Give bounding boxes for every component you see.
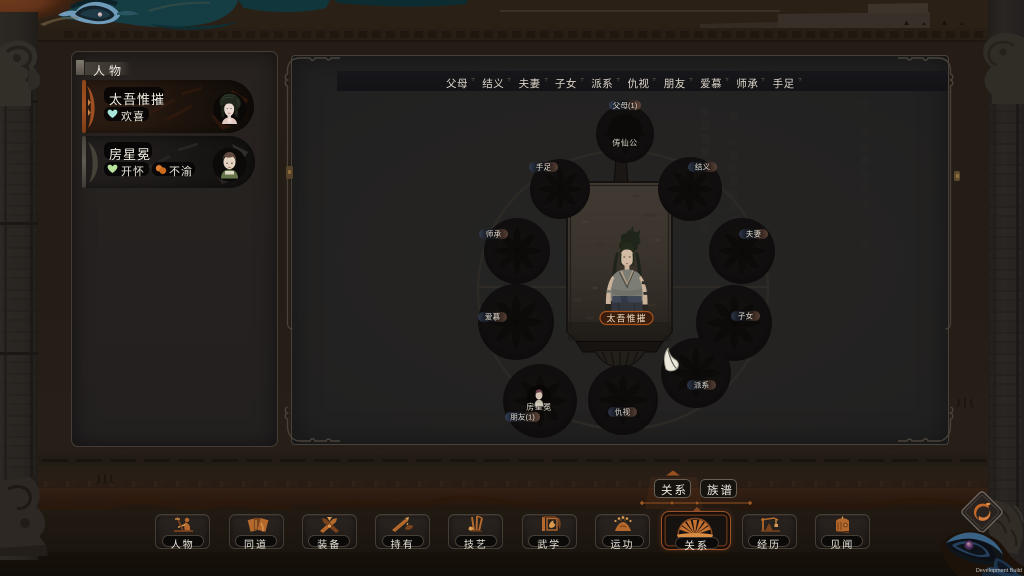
svg-text:俦仙公: 俦仙公 (612, 138, 638, 148)
svg-text:朋友(1): 朋友(1) (510, 412, 535, 422)
svg-text:爱慕: 爱慕 (485, 312, 501, 322)
svg-text:夫妻: 夫妻 (746, 229, 762, 239)
svg-text:结义: 结义 (695, 162, 711, 172)
svg-text:手足: 手足 (536, 162, 552, 172)
svg-text:仇视: 仇视 (615, 407, 631, 417)
svg-text:房星冕: 房星冕 (526, 402, 552, 412)
svg-text:父母(1): 父母(1) (613, 101, 638, 110)
svg-text:太吾惟摧: 太吾惟摧 (606, 312, 646, 323)
svg-text:子女: 子女 (738, 311, 754, 321)
svg-text:师承: 师承 (486, 229, 502, 239)
svg-text:派系: 派系 (694, 380, 710, 390)
